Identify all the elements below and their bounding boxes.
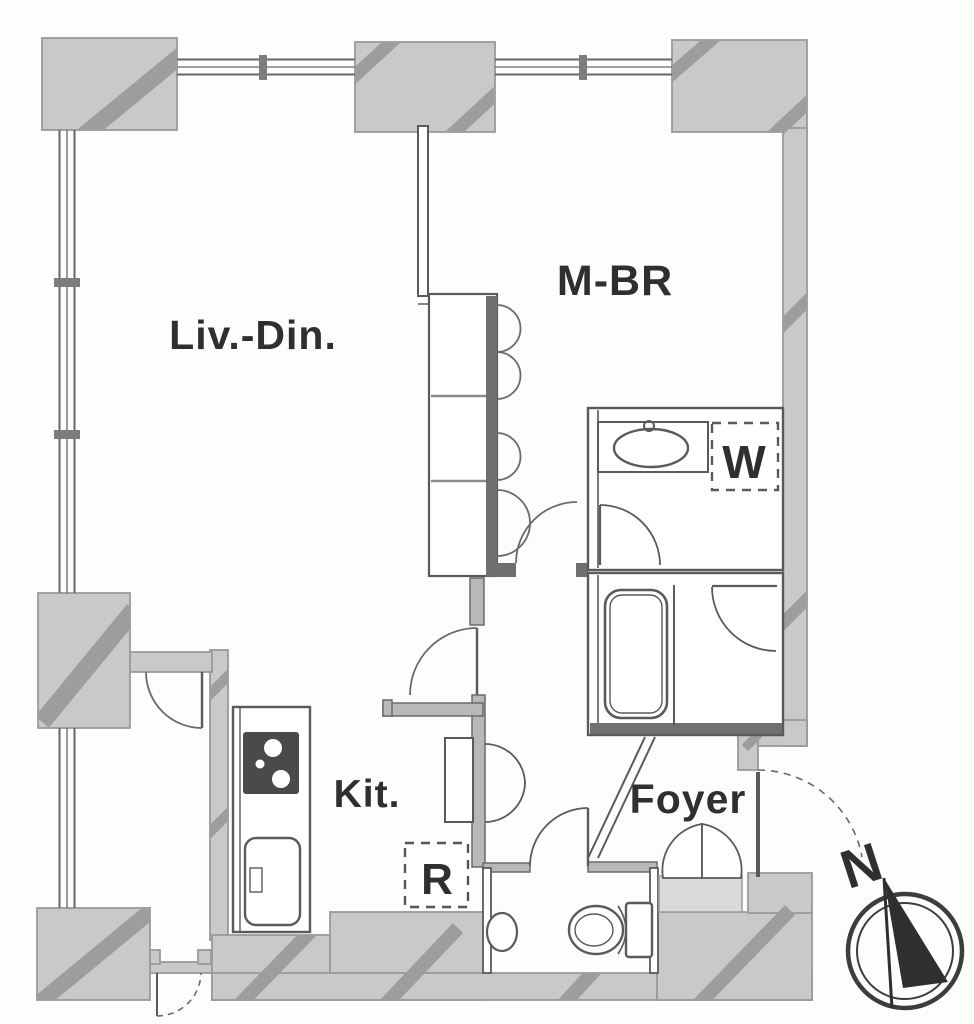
floor-plan-page: N Liv.-Din. M-BR Kit. Foyer W R xyxy=(0,0,974,1024)
room-label-foyer: Foyer xyxy=(630,776,747,822)
room-label-kitchen: Kit. xyxy=(334,773,401,816)
toilet xyxy=(569,903,652,957)
entrance-door-petal-left xyxy=(662,824,702,878)
corridor-door xyxy=(410,628,477,695)
room-label-living-dining: Liv.-Din. xyxy=(169,312,337,358)
toilet-hand-basin xyxy=(487,913,517,951)
kitchen-counter xyxy=(233,707,310,932)
floor-plan-drawing: N Liv.-Din. M-BR Kit. Foyer W R xyxy=(0,0,974,1024)
marker-label-refrigerator: R xyxy=(421,855,453,904)
bedroom-hall-door-arc xyxy=(516,502,577,563)
wall-east xyxy=(783,128,807,746)
bedroom-closet xyxy=(418,294,588,577)
room-label-master-bedroom: M-BR xyxy=(557,257,673,305)
compass-north-label: N xyxy=(834,832,890,901)
washroom xyxy=(588,408,783,570)
bathroom xyxy=(588,573,783,735)
closet-folding-doors xyxy=(497,305,530,556)
toilet-room xyxy=(483,808,658,973)
entrance-step xyxy=(659,876,742,912)
compass-rose: N xyxy=(834,832,962,1008)
door-jamb xyxy=(150,950,160,964)
entrance-door-petal-right xyxy=(702,824,742,878)
marker-label-washer: W xyxy=(722,436,766,488)
wall-entry-side xyxy=(748,873,812,913)
wall-balcony-door-head xyxy=(130,652,212,672)
toilet-door-arc xyxy=(530,808,588,866)
service-door xyxy=(157,973,201,1016)
balcony-door xyxy=(146,672,202,728)
door-jamb xyxy=(198,950,211,964)
wall-south-east xyxy=(657,912,812,1000)
